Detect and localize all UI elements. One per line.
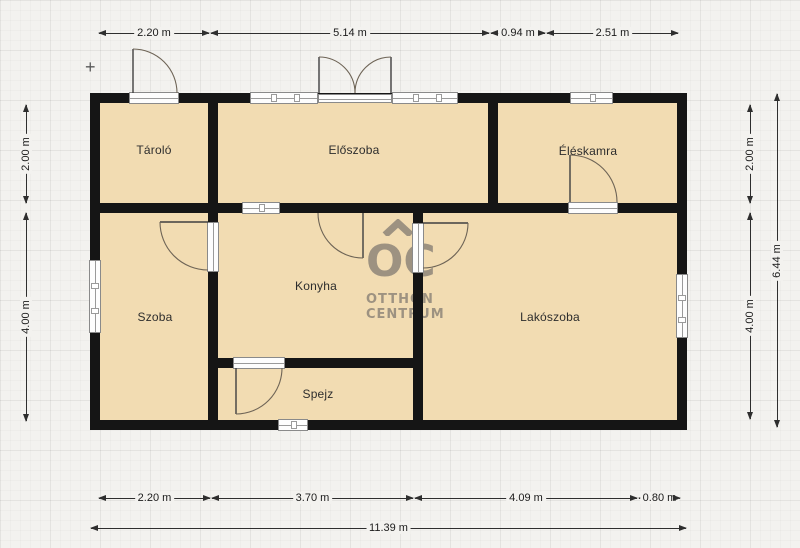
- window-lakoszoba: [676, 274, 688, 338]
- window-divider: [271, 94, 277, 102]
- room-label-spejz: Spejz: [302, 387, 333, 401]
- room-label-eloszoba: Előszoba: [329, 143, 380, 157]
- doorsill-eloszoba-double: [318, 94, 392, 103]
- window-divider: [259, 204, 265, 212]
- window-divider: [91, 283, 99, 289]
- door-tarolo: [133, 49, 177, 93]
- origin-cross-icon: +: [85, 57, 96, 78]
- dim-right-total: 6.44 m: [770, 93, 784, 428]
- window-divider: [291, 421, 297, 429]
- dim-top-4: 2.51 m: [546, 26, 679, 40]
- doorsill-szoba: [207, 222, 219, 272]
- dim-bottom-4: 0.80 m: [638, 491, 681, 505]
- dim-bottom-2: 3.70 m: [211, 491, 414, 505]
- dim-bottom-1: 2.20 m: [98, 491, 211, 505]
- dim-left-1: 2.00 m: [19, 104, 33, 204]
- dim-top-1: 2.20 m: [98, 26, 210, 40]
- dim-bottom-total: 11.39 m: [90, 521, 687, 535]
- window-divider: [294, 94, 300, 102]
- window-divider: [91, 308, 99, 314]
- window-spejz: [278, 419, 308, 431]
- dim-right-2: 4.00 m: [743, 212, 757, 420]
- doorsill-spejz: [233, 357, 285, 369]
- doorsill-lakoszoba: [412, 223, 424, 273]
- door-eloszoba-double: [319, 57, 391, 93]
- dim-bottom-3: 4.09 m: [414, 491, 638, 505]
- wall-exterior-bottom: [90, 420, 687, 430]
- window-divider: [590, 94, 596, 102]
- wall-eloszoba-eleskamra: [488, 103, 498, 203]
- window-divider: [413, 94, 419, 102]
- wall-exterior-right: [677, 93, 687, 430]
- dim-right-1: 2.00 m: [743, 104, 757, 204]
- dim-top-3: 0.94 m: [490, 26, 546, 40]
- wall-tarolo-eloszoba: [208, 103, 218, 203]
- window-szoba: [89, 260, 101, 333]
- doorsill-tarolo: [129, 92, 179, 104]
- doorsill-eleskamra: [568, 202, 618, 214]
- floor-plan: + OC OTTHON CENTRUM: [0, 0, 800, 548]
- room-label-eleskamra: Éléskamra: [559, 144, 617, 158]
- window-konyha-eloszoba: [242, 202, 280, 214]
- window-divider: [678, 295, 686, 301]
- window-eleskamra: [570, 92, 613, 104]
- window-divider: [436, 94, 442, 102]
- dim-top-2: 5.14 m: [210, 26, 490, 40]
- roof-icon: [381, 219, 415, 236]
- window-eloszoba-right: [392, 92, 458, 104]
- room-label-konyha: Konyha: [295, 279, 337, 293]
- dim-left-2: 4.00 m: [19, 212, 33, 422]
- room-label-tarolo: Tároló: [136, 143, 171, 157]
- room-label-lakoszoba: Lakószoba: [520, 310, 580, 324]
- window-divider: [678, 317, 686, 323]
- room-label-szoba: Szoba: [137, 310, 172, 324]
- window-eloszoba-left: [250, 92, 318, 104]
